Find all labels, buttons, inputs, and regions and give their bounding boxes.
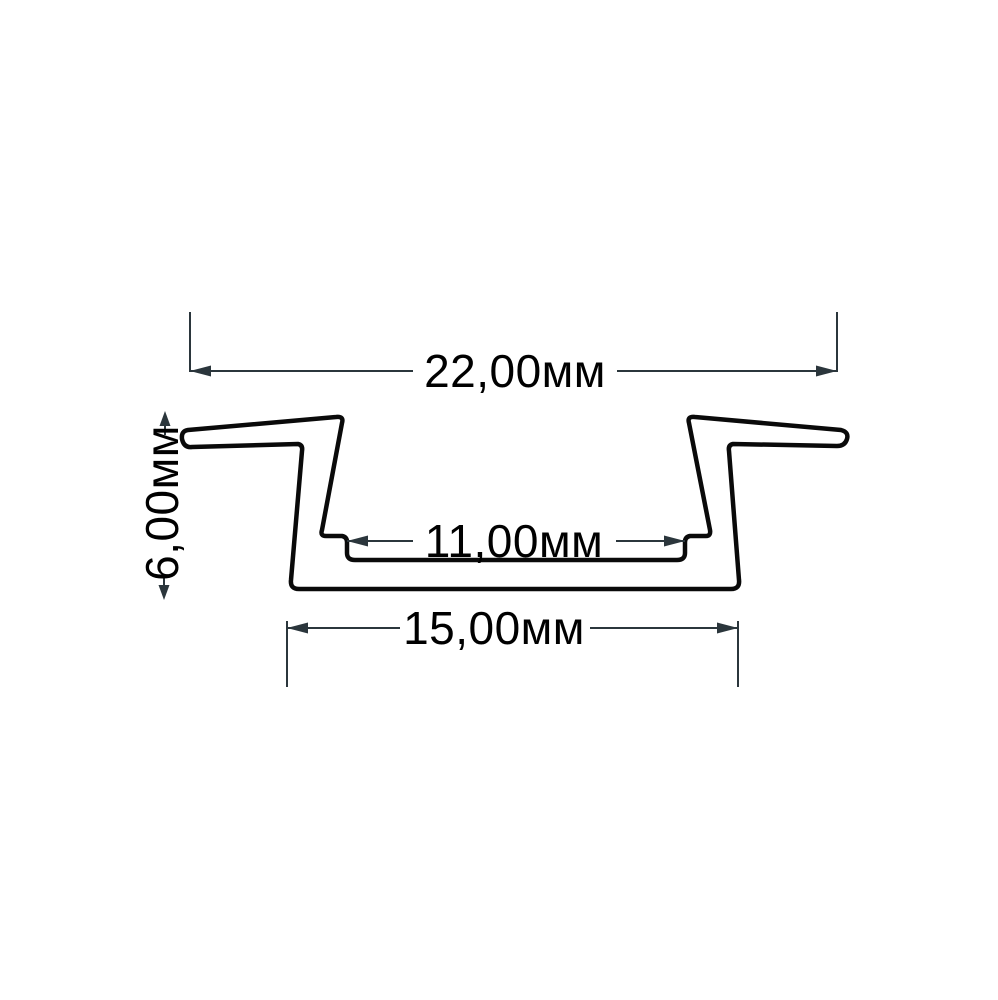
arrowhead-down-icon bbox=[159, 585, 170, 600]
overall-width-label: 22,00мм bbox=[424, 345, 606, 397]
arrowhead-left-icon bbox=[347, 536, 368, 547]
height-label: 6,00мм bbox=[136, 425, 188, 581]
inner-width-label: 11,00мм bbox=[425, 515, 603, 567]
arrowhead-right-icon bbox=[664, 536, 685, 547]
dimension-height: 6,00мм bbox=[136, 411, 188, 600]
technical-drawing-page: 22,00мм 11,00мм 15,00мм 6,0 bbox=[0, 0, 998, 1000]
arrowhead-left-icon bbox=[287, 623, 308, 634]
arrowhead-left-icon bbox=[190, 366, 211, 377]
arrowhead-right-icon bbox=[717, 623, 738, 634]
dimension-overall-width: 22,00мм bbox=[190, 312, 837, 397]
profile-cross-section-drawing: 22,00мм 11,00мм 15,00мм 6,0 bbox=[0, 0, 998, 1000]
base-width-label: 15,00мм bbox=[403, 602, 585, 654]
dimension-base-width: 15,00мм bbox=[287, 602, 738, 687]
arrowhead-up-icon bbox=[160, 411, 171, 426]
height-label-rotation: 6,00мм bbox=[136, 425, 188, 581]
arrowhead-right-icon bbox=[816, 366, 837, 377]
